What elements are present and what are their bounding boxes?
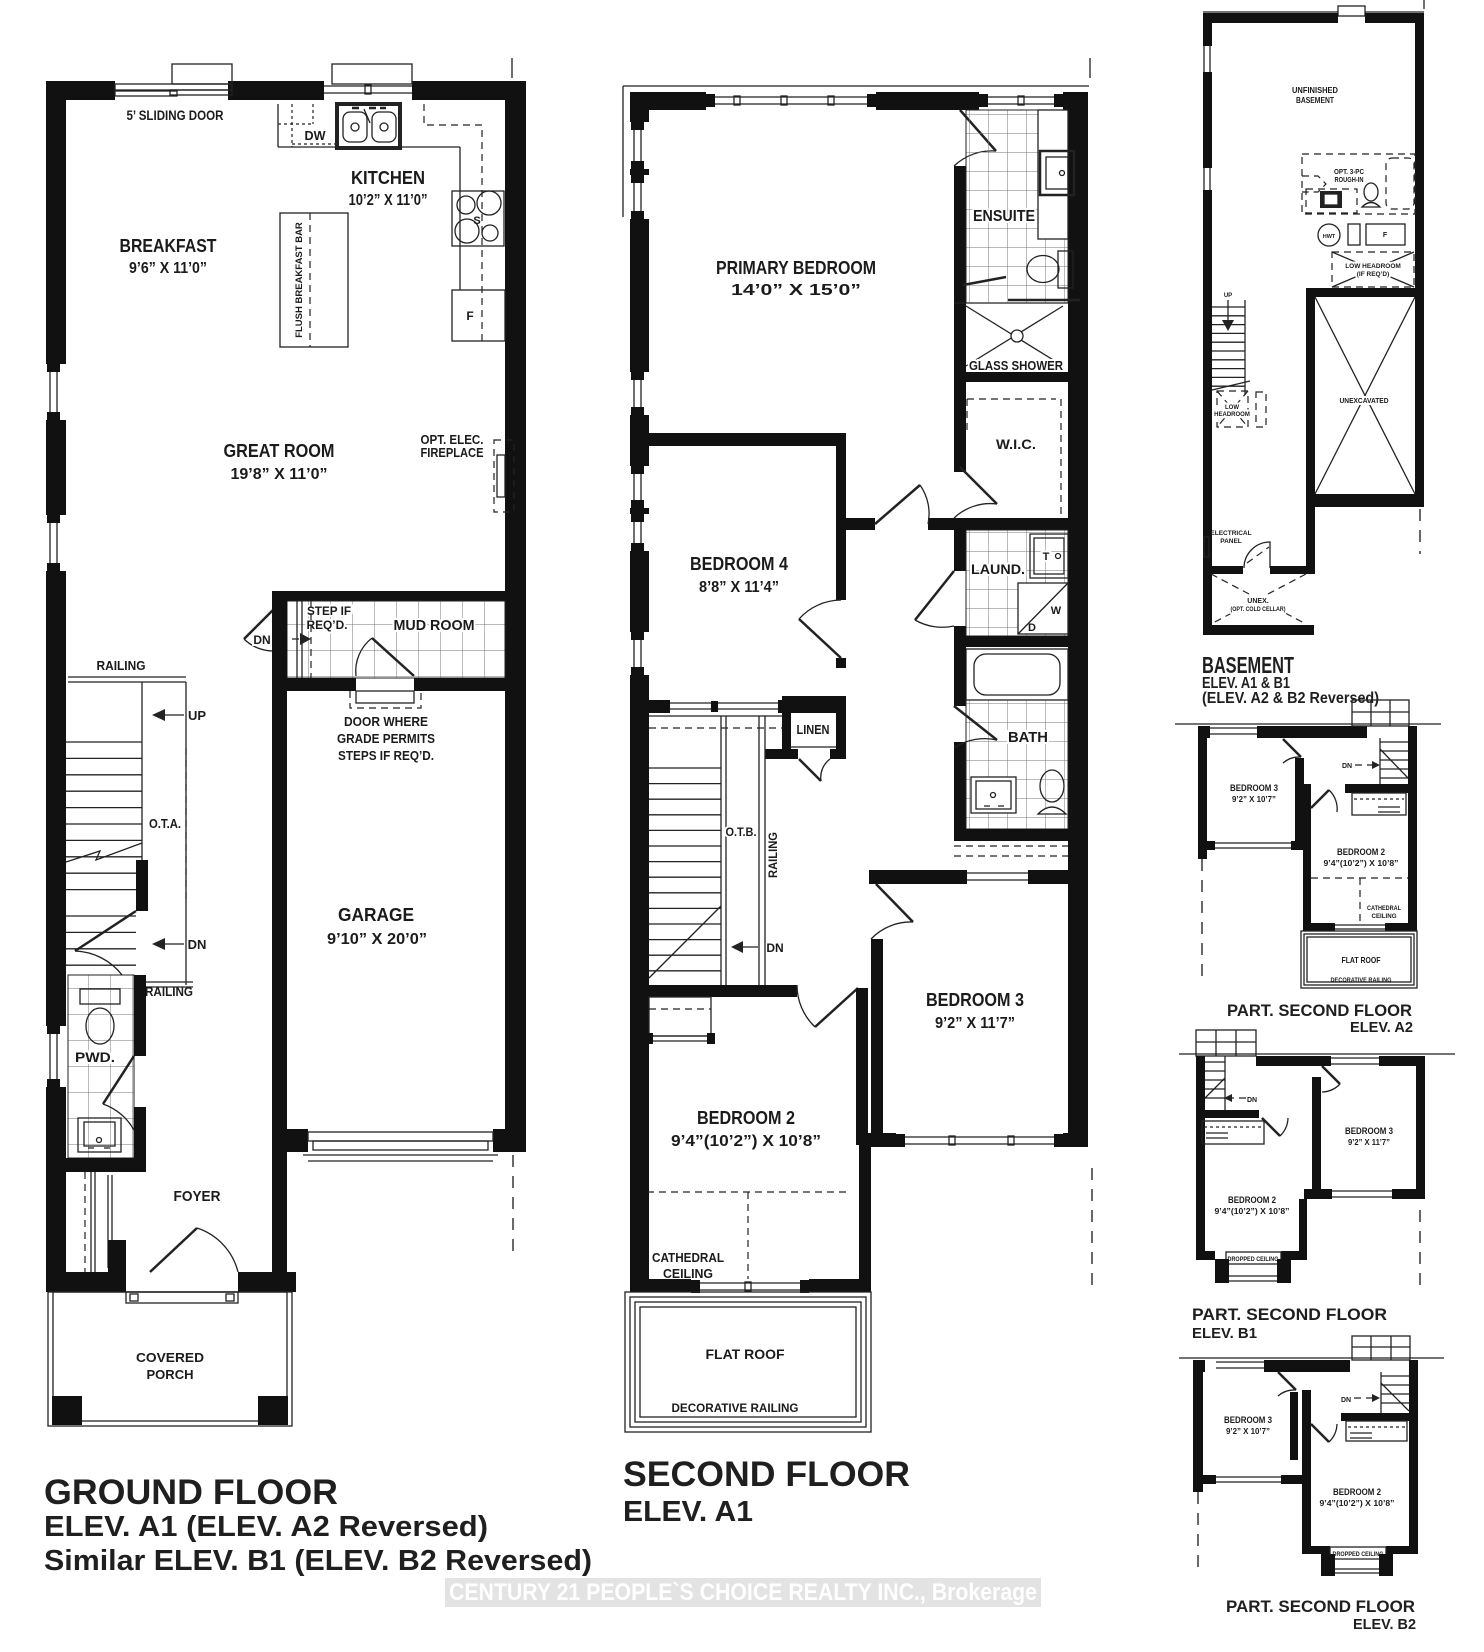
svg-text:HEADROOM: HEADROOM [1214,412,1250,418]
svg-text:DN: DN [1342,763,1352,770]
svg-text:DN: DN [766,941,783,955]
svg-text:9’4”(10’2”) X 10’8”: 9’4”(10’2”) X 10’8” [1215,1206,1290,1216]
svg-text:GROUND FLOOR: GROUND FLOOR [44,1473,338,1512]
svg-text:KITCHEN: KITCHEN [351,168,425,188]
svg-text:T: T [1043,551,1050,563]
svg-text:BEDROOM 2: BEDROOM 2 [1333,1487,1381,1498]
svg-text:GLASS SHOWER: GLASS SHOWER [969,358,1064,373]
svg-text:RAILING: RAILING [145,984,193,999]
svg-text:CEILING: CEILING [663,1267,713,1281]
svg-text:PRIMARY BEDROOM: PRIMARY BEDROOM [716,258,876,278]
svg-text:OPT. 3-PC: OPT. 3-PC [1334,169,1364,176]
svg-text:PART. SECOND FLOOR: PART. SECOND FLOOR [1192,1305,1387,1324]
svg-text:CEILING: CEILING [1372,913,1397,920]
svg-text:CATHEDRAL: CATHEDRAL [652,1251,724,1265]
svg-text:PART. SECOND FLOOR: PART. SECOND FLOOR [1227,1001,1412,1020]
svg-text:ROUGH-IN: ROUGH-IN [1335,177,1364,184]
svg-text:BEDROOM 3: BEDROOM 3 [1345,1126,1393,1137]
svg-text:FIREPLACE: FIREPLACE [421,445,484,460]
svg-text:W: W [1051,605,1062,617]
svg-text:DROPPED CEILING: DROPPED CEILING [1333,1551,1384,1558]
svg-text:9’2” X 10’7”: 9’2” X 10’7” [1232,794,1276,804]
svg-text:DECORATIVE RAILING: DECORATIVE RAILING [1331,978,1392,984]
svg-text:BASEMENT: BASEMENT [1296,95,1335,105]
svg-text:9’4”(10’2”) X 10’8”: 9’4”(10’2”) X 10’8” [1324,858,1399,868]
svg-text:W.I.C.: W.I.C. [996,436,1036,452]
svg-text:UP: UP [188,708,206,723]
svg-text:Similar ELEV. B1 (ELEV. B2 Rev: Similar ELEV. B1 (ELEV. B2 Reversed) [44,1545,592,1577]
svg-text:REQ’D.: REQ’D. [307,618,348,632]
svg-text:BEDROOM 2: BEDROOM 2 [1337,847,1385,858]
svg-text:GREAT ROOM: GREAT ROOM [224,441,335,461]
svg-text:BEDROOM 2: BEDROOM 2 [697,1108,795,1128]
svg-text:DECORATIVE RAILING: DECORATIVE RAILING [672,1401,799,1415]
svg-text:GARAGE: GARAGE [338,905,414,925]
svg-text:PORCH: PORCH [147,1367,194,1382]
svg-text:DN: DN [253,633,270,647]
svg-text:HWT: HWT [1323,234,1336,240]
svg-text:FLUSH BREAKFAST BAR: FLUSH BREAKFAST BAR [294,222,305,338]
svg-text:5’ SLIDING DOOR: 5’ SLIDING DOOR [127,108,224,123]
svg-text:BEDROOM 3: BEDROOM 3 [1230,783,1278,794]
svg-text:BREAKFAST: BREAKFAST [120,236,217,256]
svg-text:MUD ROOM: MUD ROOM [394,617,475,634]
svg-text:FLAT ROOF: FLAT ROOF [1342,955,1381,965]
svg-text:F: F [466,309,473,323]
svg-text:ELEV. A1 (ELEV. A2 Reversed): ELEV. A1 (ELEV. A2 Reversed) [44,1511,488,1543]
svg-text:ELEV. B1: ELEV. B1 [1192,1325,1257,1342]
svg-text:9’6” X 11’0”: 9’6” X 11’0” [129,260,207,277]
svg-text:DW: DW [305,128,327,143]
svg-text:DOOR WHERE: DOOR WHERE [344,714,428,729]
svg-text:UNEXCAVATED: UNEXCAVATED [1340,396,1390,405]
svg-text:BEDROOM 3: BEDROOM 3 [1224,1415,1272,1426]
svg-text:STEPS IF REQ’D.: STEPS IF REQ’D. [338,748,434,763]
svg-text:DN: DN [188,937,207,952]
svg-text:O.T.B.: O.T.B. [726,825,757,839]
svg-text:ELEV. A1: ELEV. A1 [623,1496,753,1528]
svg-text:LAUND.: LAUND. [971,562,1025,577]
svg-text:RAILING: RAILING [766,832,780,878]
svg-text:LOW: LOW [1225,405,1239,411]
svg-text:9’2” X 11’7”: 9’2” X 11’7” [1348,1137,1390,1147]
svg-text:GRADE PERMITS: GRADE PERMITS [337,731,435,746]
svg-text:CENTURY 21 PEOPLE`S CHOICE REA: CENTURY 21 PEOPLE`S CHOICE REALTY INC., … [449,1579,1037,1606]
svg-text:(OPT. COLD CELLAR): (OPT. COLD CELLAR) [1231,607,1286,613]
svg-text:PART. SECOND FLOOR: PART. SECOND FLOOR [1226,1597,1415,1616]
svg-text:DN: DN [1341,1397,1351,1404]
svg-text:8’8” X 11’4”: 8’8” X 11’4” [699,579,779,596]
svg-text:ELEV. A2: ELEV. A2 [1350,1019,1413,1036]
svg-text:RAILING: RAILING [97,658,146,673]
svg-text:CATHEDRAL: CATHEDRAL [1367,905,1401,912]
svg-text:10’2” X 11’0”: 10’2” X 11’0” [349,192,428,209]
svg-text:UNEX.: UNEX. [1247,598,1268,605]
svg-text:UP: UP [1224,293,1232,299]
svg-text:FLAT ROOF: FLAT ROOF [706,1346,785,1362]
svg-text:DROPPED CEILING: DROPPED CEILING [1228,1256,1279,1263]
svg-text:DN: DN [1247,1097,1257,1104]
svg-text:BEDROOM 2: BEDROOM 2 [1228,1195,1276,1206]
svg-text:19’8” X 11’0”: 19’8” X 11’0” [231,466,328,483]
svg-text:FOYER: FOYER [174,1188,221,1205]
svg-text:BEDROOM 3: BEDROOM 3 [926,990,1024,1010]
svg-text:COVERED: COVERED [136,1350,204,1365]
svg-text:LINEN: LINEN [797,723,830,737]
svg-text:STEP IF: STEP IF [307,604,351,618]
svg-text:PANEL: PANEL [1220,538,1242,545]
svg-text:(IF REQ’D): (IF REQ’D) [1357,271,1390,278]
svg-text:BEDROOM 4: BEDROOM 4 [690,554,788,574]
svg-text:9’2” X 10’7”: 9’2” X 10’7” [1226,1426,1270,1436]
svg-text:9’4”(10’2”) X 10’8”: 9’4”(10’2”) X 10’8” [671,1133,821,1150]
svg-text:14’0” X 15’0”: 14’0” X 15’0” [731,282,861,299]
svg-text:SECOND FLOOR: SECOND FLOOR [623,1455,910,1494]
svg-text:D: D [1028,622,1036,634]
svg-text:F: F [1383,232,1388,239]
svg-text:ENSUITE: ENSUITE [973,208,1035,225]
svg-text:LOW HEADROOM: LOW HEADROOM [1345,263,1401,270]
svg-text:ELECTRICAL: ELECTRICAL [1210,530,1251,537]
svg-text:S: S [473,215,480,227]
svg-text:PWD.: PWD. [75,1049,115,1065]
svg-text:9’2” X 11’7”: 9’2” X 11’7” [935,1015,1015,1032]
svg-text:BATH: BATH [1008,730,1048,746]
svg-text:9’10” X 20’0”: 9’10” X 20’0” [327,931,427,948]
svg-text:9’4”(10’2”) X 10’8”: 9’4”(10’2”) X 10’8” [1320,1498,1395,1508]
svg-text:UNFINISHED: UNFINISHED [1292,85,1338,95]
svg-text:ELEV. B2: ELEV. B2 [1353,1616,1416,1633]
svg-text:O.T.A.: O.T.A. [149,816,181,831]
